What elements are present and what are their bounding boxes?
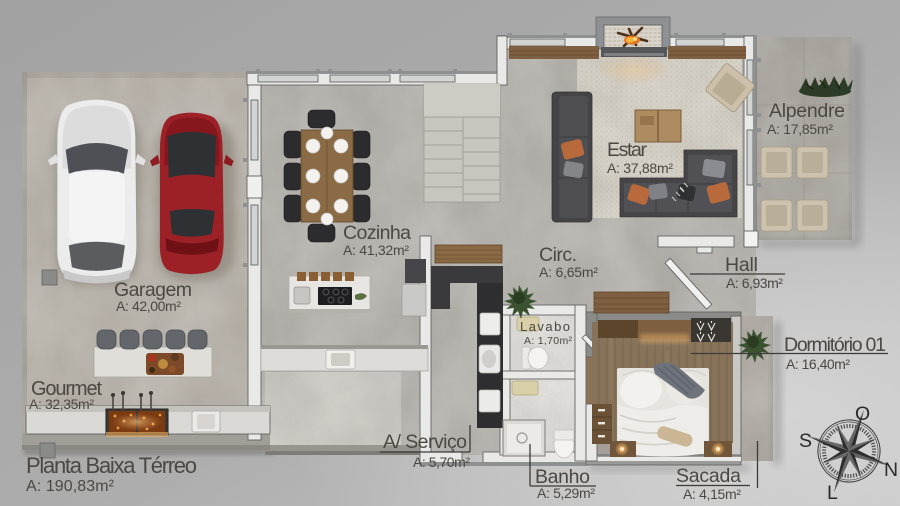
svg-text:A: 5,70m²: A: 5,70m² xyxy=(413,454,470,470)
svg-text:L: L xyxy=(827,482,838,504)
svg-text:Alpendre: Alpendre xyxy=(769,100,845,122)
svg-text:S: S xyxy=(799,430,812,452)
svg-text:Sacada: Sacada xyxy=(676,465,741,487)
svg-text:Dormitório 01: Dormitório 01 xyxy=(784,334,886,356)
svg-text:A: 4,15m²: A: 4,15m² xyxy=(683,486,741,502)
svg-text:A: 5,29m²: A: 5,29m² xyxy=(537,485,595,501)
svg-text:A: 17,85m²: A: 17,85m² xyxy=(767,121,833,137)
svg-text:A/ Serviço: A/ Serviço xyxy=(383,431,467,453)
svg-text:A: 6,93m²: A: 6,93m² xyxy=(726,275,783,291)
svg-text:A: 37,88m²: A: 37,88m² xyxy=(607,160,673,176)
svg-text:Planta Baixa Térreo: Planta Baixa Térreo xyxy=(26,453,197,478)
svg-text:N: N xyxy=(884,459,898,481)
svg-text:O: O xyxy=(855,403,870,425)
svg-text:A: 6,65m²: A: 6,65m² xyxy=(539,264,598,280)
svg-text:A: 42,00m²: A: 42,00m² xyxy=(116,298,181,314)
svg-text:A: 41,32m²: A: 41,32m² xyxy=(343,242,409,258)
svg-text:A: 32,35m²: A: 32,35m² xyxy=(29,396,94,412)
svg-text:A: 1,70m²: A: 1,70m² xyxy=(524,335,573,347)
svg-text:A: 190,83m²: A: 190,83m² xyxy=(26,478,115,495)
svg-text:Cozinha: Cozinha xyxy=(343,222,411,244)
svg-text:Estar: Estar xyxy=(607,139,648,161)
svg-text:A: 16,40m²: A: 16,40m² xyxy=(786,356,850,372)
svg-text:Circ.: Circ. xyxy=(539,244,577,266)
svg-text:Hall: Hall xyxy=(725,254,758,276)
